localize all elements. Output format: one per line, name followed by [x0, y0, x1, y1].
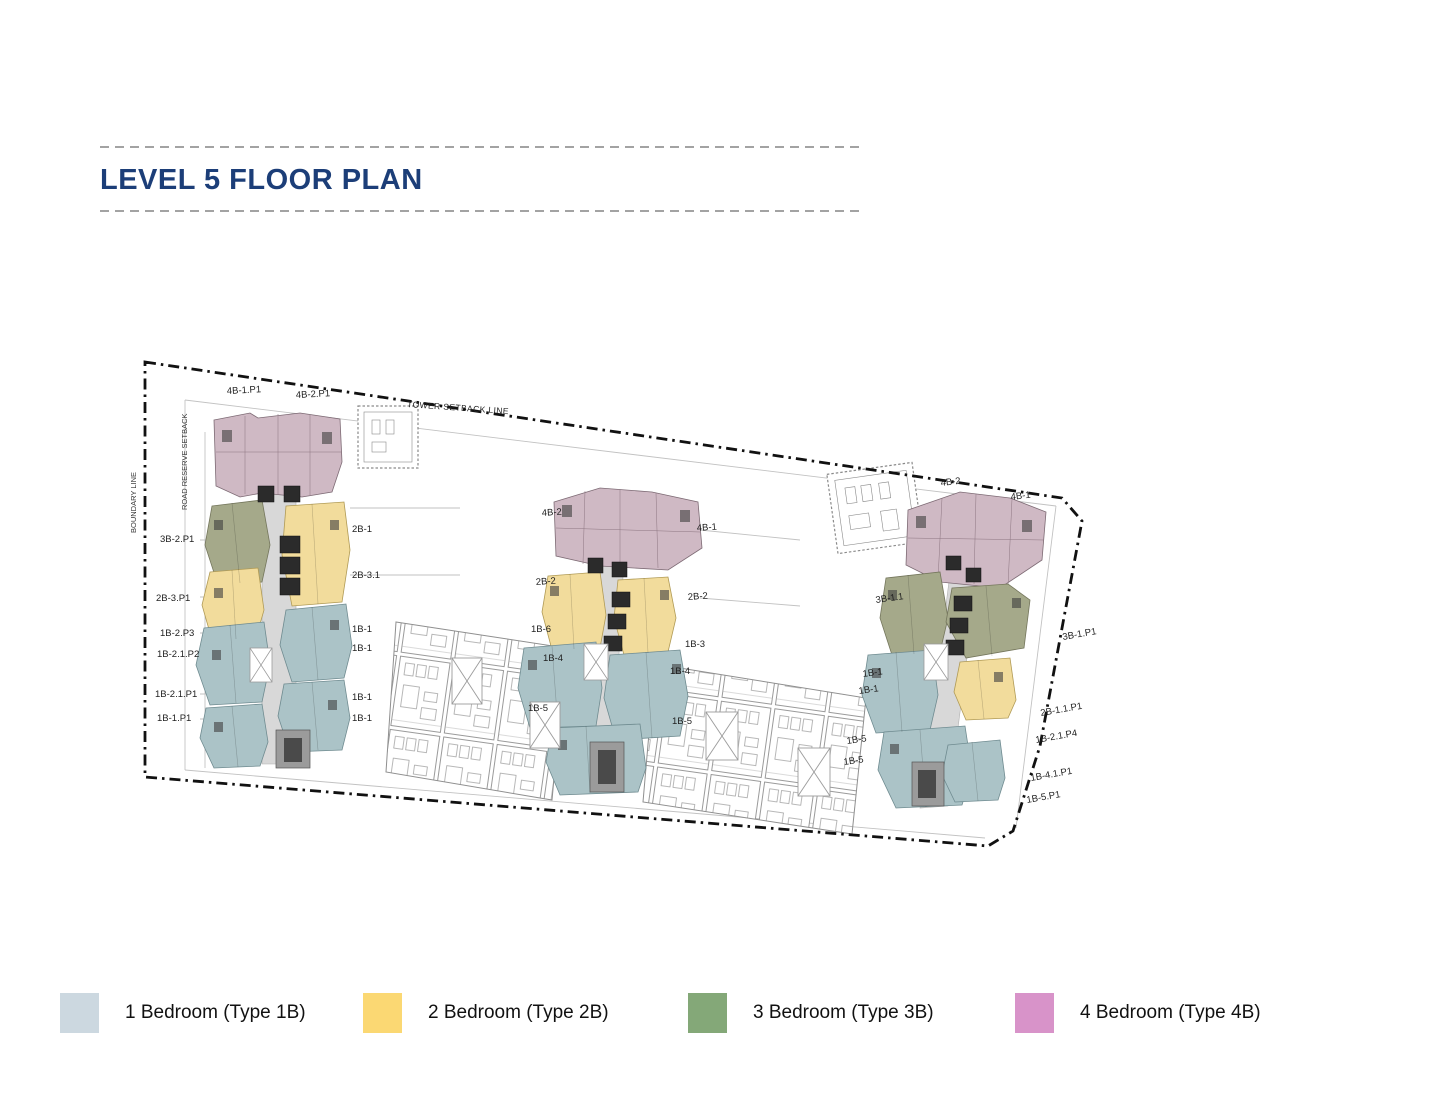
unit-label: 3B-1.P1 [1062, 626, 1098, 643]
unit-label: 1B-6 [531, 624, 551, 635]
unit-label: 4B-2.P1 [296, 388, 331, 401]
unit-label: 1B-1 [352, 692, 372, 703]
unit-4b-block [554, 488, 702, 570]
unit-label: 1B-5 [528, 703, 548, 714]
unit-label: 2B-1 [352, 524, 372, 535]
unit-label: 2B-2 [687, 591, 708, 603]
left-tower [196, 413, 352, 768]
tower-setback-label: TOWER SETBACK LINE [407, 399, 509, 416]
unit-2b-block [954, 658, 1016, 720]
unit-label: 1B-5 [672, 716, 692, 727]
unit-label: 1B-2.1.P1 [155, 689, 197, 700]
floor-plan: TOWER SETBACK LINE BOUNDARY LINE ROAD RE… [0, 0, 1440, 1113]
unit-label: 3B-2.P1 [160, 534, 194, 545]
unit-label: 4B-2 [940, 476, 961, 489]
unit-label: 1B-5 [843, 754, 864, 768]
unit-label: 1B-3 [685, 639, 705, 650]
unit-label: 2B-3.P1 [156, 593, 190, 604]
unit-label: 1B-4 [670, 666, 690, 677]
unit-label: 1B-5 [846, 733, 867, 747]
unit-label: 2B-2 [535, 576, 556, 588]
unit-label: 2B-1.1.P1 [1040, 701, 1084, 719]
unit-label: 2B-3.1 [352, 570, 380, 581]
unit-label: 4B-1 [696, 522, 717, 534]
unit-label: 1B-1 [352, 624, 372, 635]
unit-label: 1B-4.1.P1 [1030, 766, 1074, 784]
unit-label: 4B-1.P1 [227, 384, 262, 397]
road-reserve-label: ROAD RESERVE SETBACK [180, 413, 189, 510]
unit-label: 1B-4 [543, 653, 563, 664]
unit-label: 1B-2.1.P4 [1035, 728, 1079, 746]
unit-label: 1B-1 [352, 713, 372, 724]
unit-label: 1B-1 [352, 643, 372, 654]
unit-label: 1B-5.P1 [1026, 789, 1062, 806]
unit-label: 4B-1 [1010, 490, 1031, 503]
unit-label: 1B-2.P3 [160, 628, 194, 639]
boundary-line-label: BOUNDARY LINE [129, 472, 138, 533]
unit-label: 4B-2 [541, 507, 562, 519]
unit-label: 1B-1.P1 [157, 713, 191, 724]
unit-label: 1B-2.1.P2 [157, 649, 199, 660]
